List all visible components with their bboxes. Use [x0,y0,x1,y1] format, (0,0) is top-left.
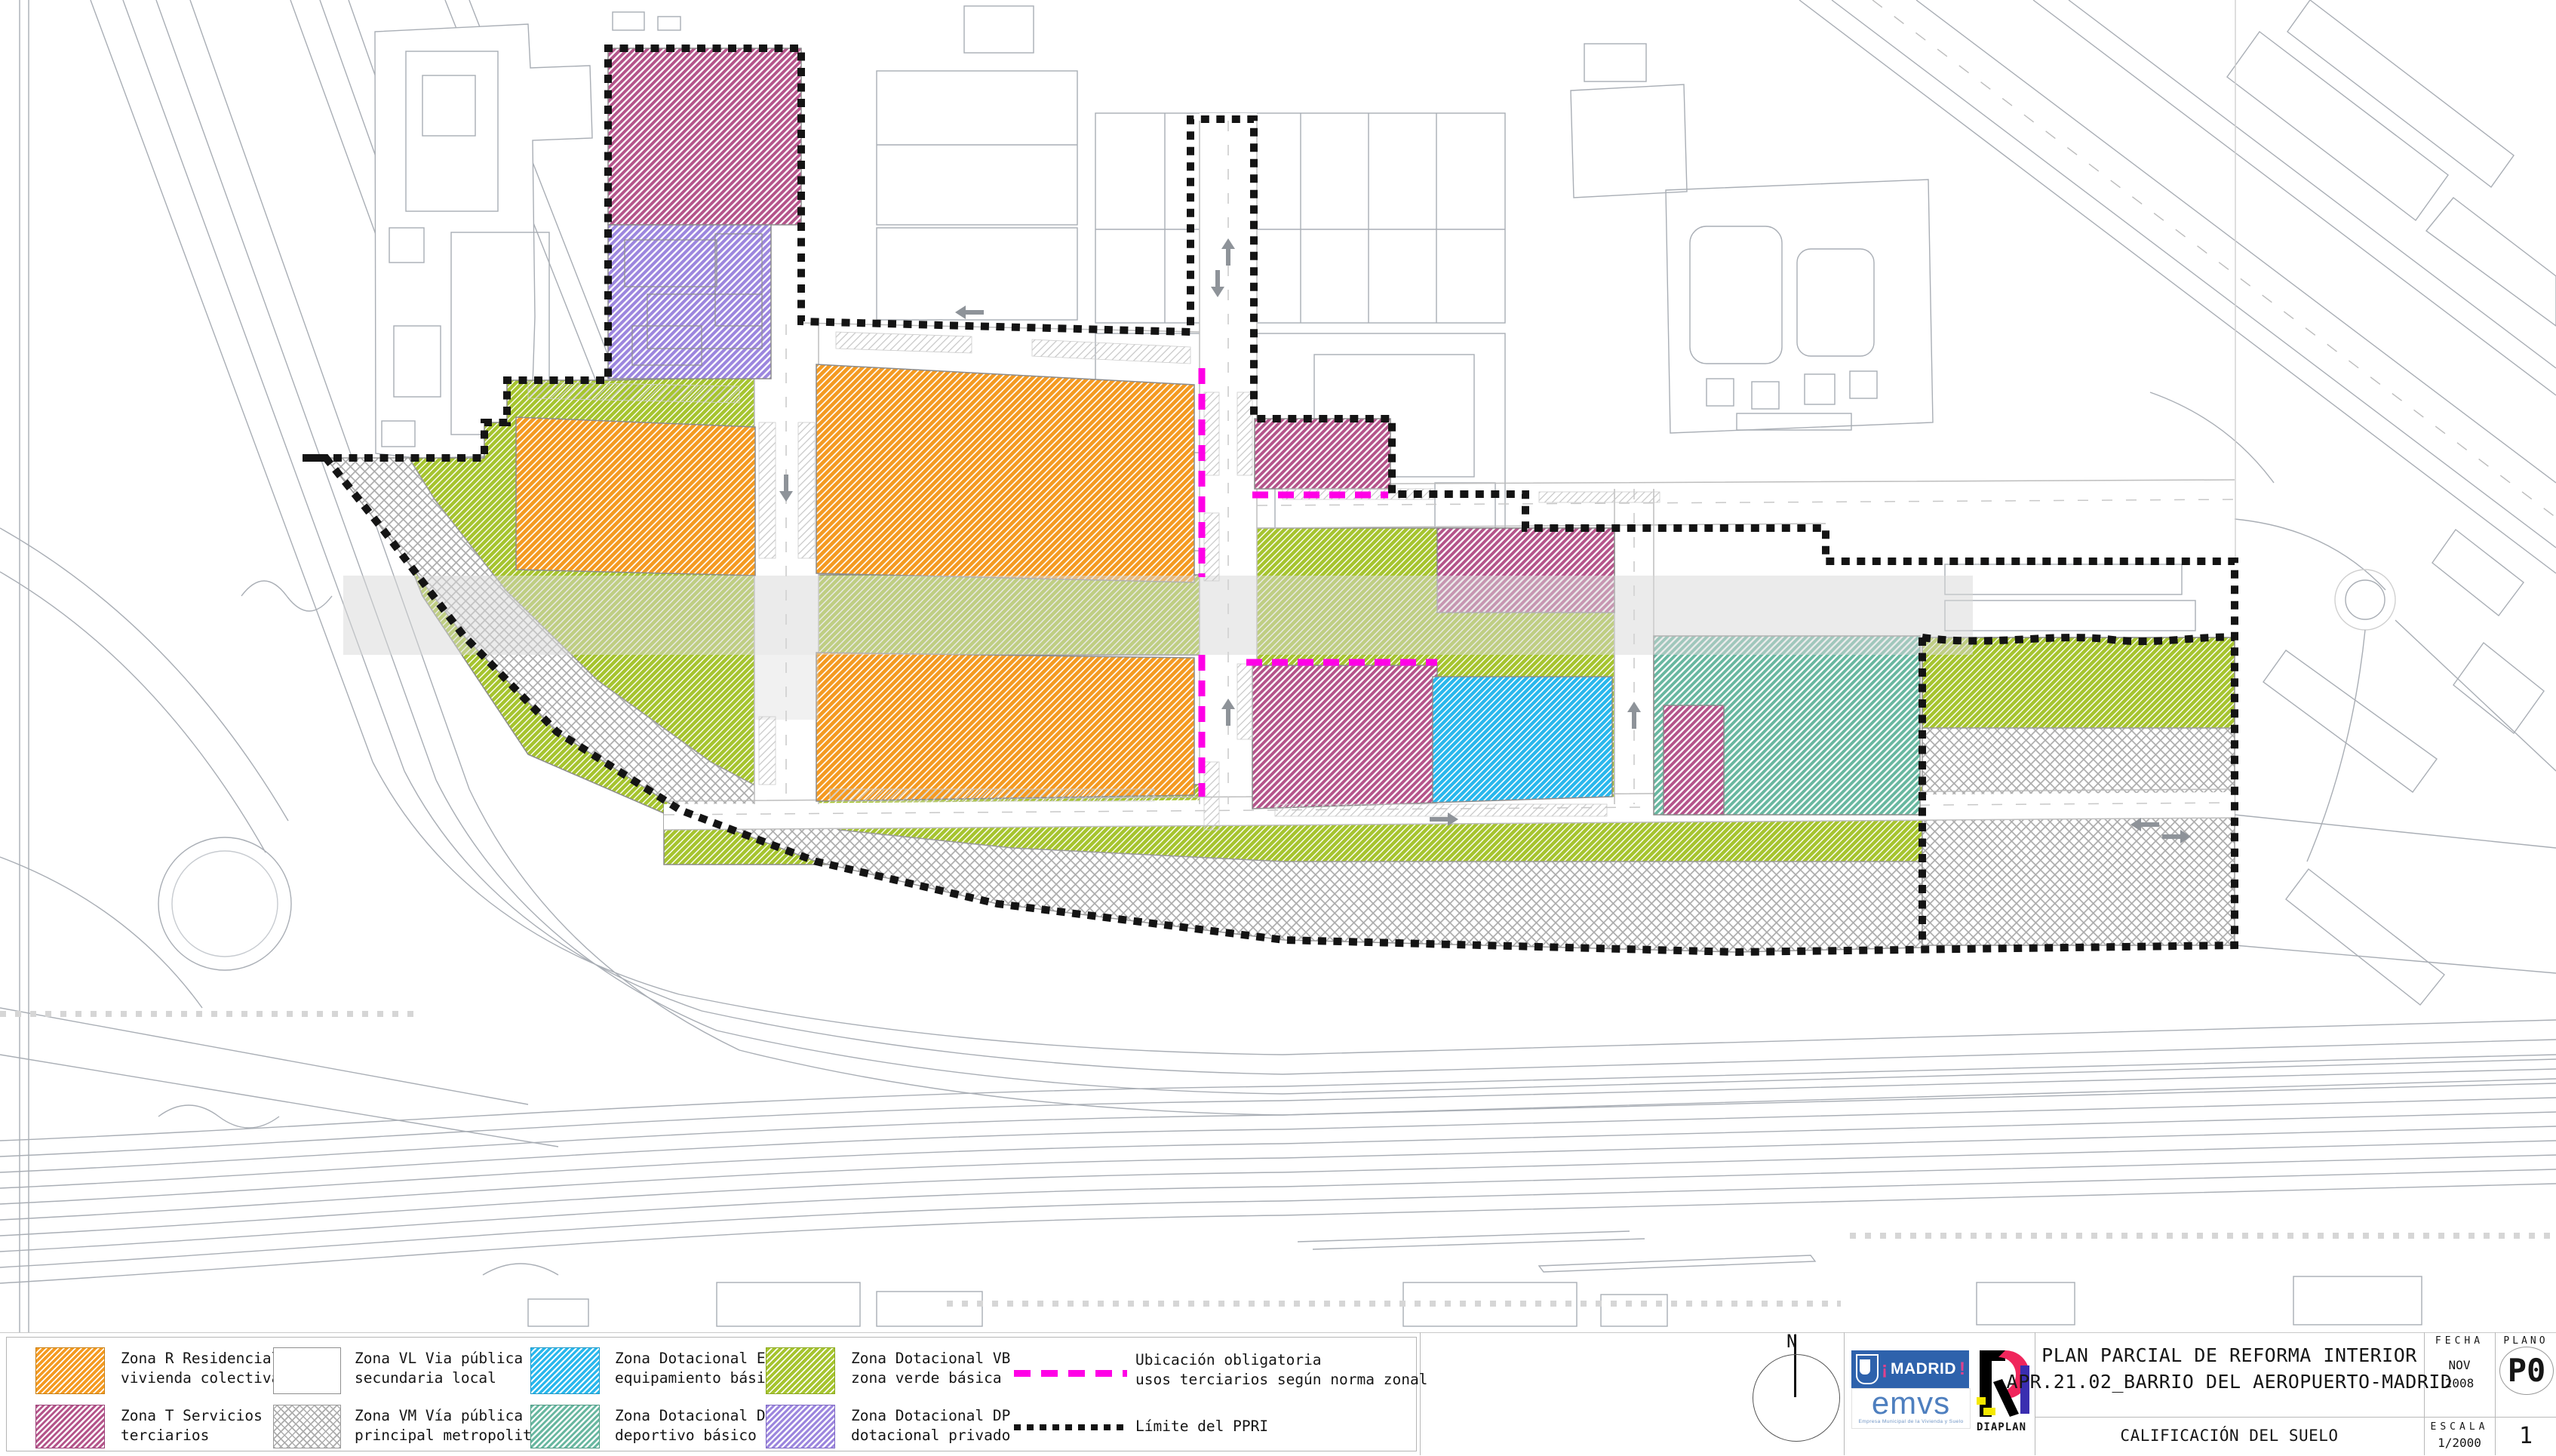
legend-label: Zona Dotacional EBequipamiento básico [615,1349,783,1388]
legend-label: Zona Dotacional VBzona verde básica [851,1349,1010,1388]
zona-residencial-c [816,653,1194,801]
legend-swatch-equipamiento [530,1347,600,1394]
north-compass-icon [1753,1354,1840,1442]
corridor-overlay-stub [754,655,819,720]
legend-label: Zona T Serviciosterciarios [121,1406,263,1445]
legend-label: Zona VL Via públicasecundaria local [355,1349,523,1388]
legend-line-limite [1014,1424,1127,1430]
zona-residencial-b [816,364,1194,582]
plano-label: PLANO [2503,1335,2548,1347]
zona-equipamiento-basico [1433,677,1612,803]
legend-label: Zona VM Vía públicaprincipal metropolita… [355,1406,558,1445]
zona-terciarios-este [1664,705,1724,815]
legend-swatch-terciarios [35,1405,105,1448]
diaplan-wordmark: DIAPLAN [1977,1421,2026,1433]
legend-label: Ubicación obligatoriausos terciarios seg… [1135,1350,1427,1390]
plan-subtitle: CALIFICACIÓN DEL SUELO [2120,1427,2338,1445]
fecha-label: FECHA [2435,1335,2484,1347]
legend-line-ubicacion [1014,1370,1127,1377]
fecha-year: 2008 [2445,1376,2475,1390]
zona-terciarios-noroeste [608,48,801,225]
plan-sheet: Zona R Residencialvivienda colectiva Zon… [0,0,2556,1456]
legend-swatch-verde [766,1347,835,1394]
escala-label: ESCALA [2431,1421,2489,1433]
legend-swatch-privado [766,1405,835,1448]
legend-swatch-via-local [273,1347,341,1394]
legend-swatch-residencial [35,1347,105,1394]
legend-label: Límite del PPRI [1135,1417,1268,1436]
zoning-layers [303,48,2235,952]
escala-value: 1/2000 [2438,1436,2481,1450]
corridor-overlay [343,576,1973,655]
zona-residencial-a [516,417,755,576]
divider [2424,1332,2425,1455]
divider [2035,1332,2035,1455]
plan-title-line2: APR.21.02_BARRIO DEL AEROPUERTO-MADRID [2007,1371,2453,1393]
emvs-logo: emvs Empresa Municipal de la Vivienda y … [1851,1388,1971,1429]
legend-label: Zona Dotacional DBdeportivo básico [615,1406,774,1445]
plan-title-line1: PLAN PARCIAL DE REFORMA INTERIOR [2041,1344,2417,1366]
sheet-number: 1 [2519,1423,2533,1449]
divider [1844,1332,1845,1455]
zona-terciarios-norte [1255,419,1390,489]
emvs-caption: Empresa Municipal de la Vivienda y Suelo [1852,1420,1970,1425]
madrid-wordmark: MADRID [1891,1360,1956,1378]
divider [2495,1332,2496,1455]
divider [2035,1417,2556,1418]
plano-code: P0 [2508,1352,2546,1389]
madrid-exclamation-icon: ¡ [1882,1359,1888,1380]
legend-swatch-via-metropolitana [273,1405,341,1448]
zona-terciarios-sur [1252,665,1437,809]
madrid-shield-icon [1856,1354,1879,1384]
madrid-logo: ¡ MADRID ! [1851,1350,1969,1388]
fecha-month: NOV [2449,1358,2471,1372]
legend-swatch-deportivo [530,1405,600,1448]
emvs-wordmark: emvs [1852,1387,1970,1419]
legend-label: Zona R Residencialvivienda colectiva [121,1349,280,1388]
map-canvas [0,0,2556,1332]
madrid-exclamation-icon: ! [1959,1359,1965,1380]
legend-label: Zona Dotacional DPdotacional privado [851,1406,1010,1445]
